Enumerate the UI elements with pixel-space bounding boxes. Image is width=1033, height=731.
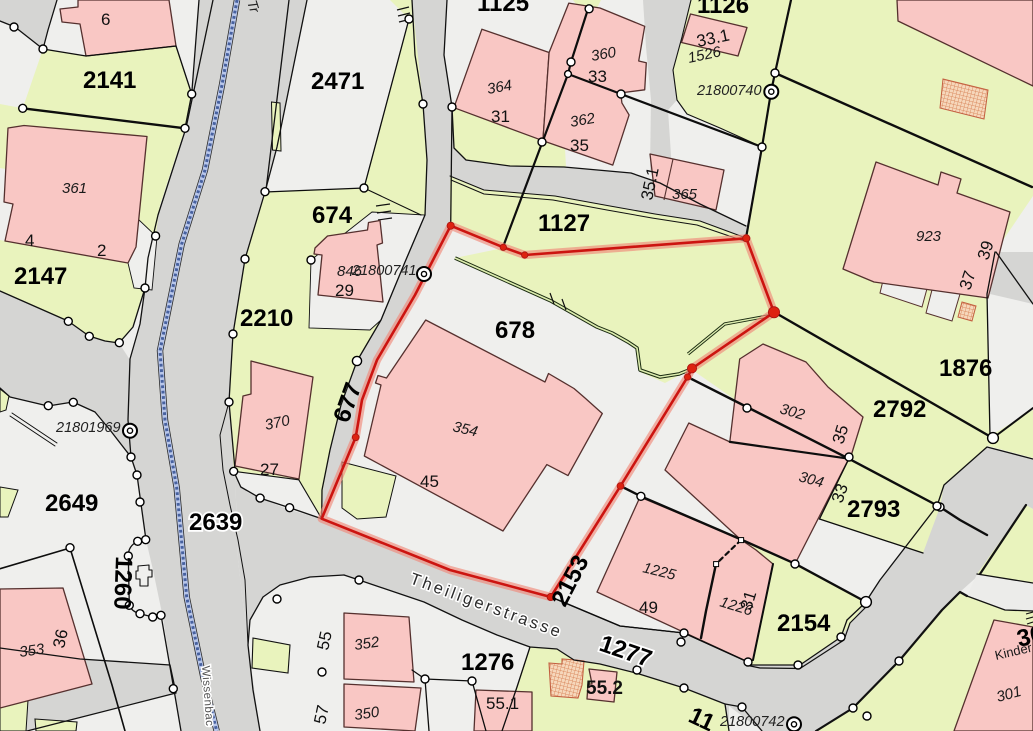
svg-text:2154: 2154 [777, 610, 831, 637]
svg-text:2471: 2471 [311, 68, 364, 95]
svg-text:365: 365 [672, 186, 698, 203]
svg-text:2147: 2147 [14, 263, 67, 290]
svg-text:2141: 2141 [83, 67, 136, 94]
svg-text:33: 33 [588, 67, 607, 86]
svg-text:29: 29 [335, 281, 354, 300]
svg-text:1125: 1125 [477, 0, 529, 17]
svg-text:1876: 1876 [939, 355, 992, 382]
svg-text:21800741: 21800741 [351, 263, 417, 279]
svg-text:2649: 2649 [45, 490, 98, 517]
svg-text:49: 49 [639, 598, 658, 617]
svg-text:1260: 1260 [108, 556, 137, 610]
svg-text:55.2: 55.2 [586, 678, 623, 699]
svg-text:57: 57 [310, 703, 333, 725]
svg-text:36: 36 [49, 627, 72, 649]
svg-text:678: 678 [495, 317, 535, 344]
svg-text:352: 352 [353, 634, 381, 654]
svg-text:353: 353 [18, 641, 46, 661]
svg-text:1276: 1276 [461, 649, 514, 676]
svg-text:350: 350 [353, 704, 381, 724]
svg-text:31: 31 [491, 107, 510, 126]
svg-text:55: 55 [313, 629, 336, 651]
svg-text:674: 674 [312, 202, 353, 229]
svg-text:1127: 1127 [538, 210, 590, 237]
svg-text:21800742: 21800742 [719, 714, 785, 730]
svg-text:21800740: 21800740 [696, 83, 762, 99]
svg-text:923: 923 [916, 228, 942, 245]
svg-text:1126: 1126 [697, 0, 749, 19]
svg-text:4: 4 [25, 231, 34, 250]
svg-text:21801969: 21801969 [55, 420, 121, 436]
svg-text:45: 45 [420, 472, 439, 491]
svg-text:35: 35 [570, 136, 589, 155]
svg-text:2210: 2210 [240, 305, 293, 332]
svg-text:55.1: 55.1 [486, 694, 519, 713]
svg-text:361: 361 [62, 180, 87, 197]
svg-text:27: 27 [260, 460, 279, 479]
svg-text:2639: 2639 [189, 509, 242, 536]
svg-text:2792: 2792 [873, 396, 926, 423]
svg-text:6: 6 [101, 10, 110, 29]
svg-text:2793: 2793 [847, 496, 900, 523]
svg-text:2: 2 [97, 241, 106, 260]
